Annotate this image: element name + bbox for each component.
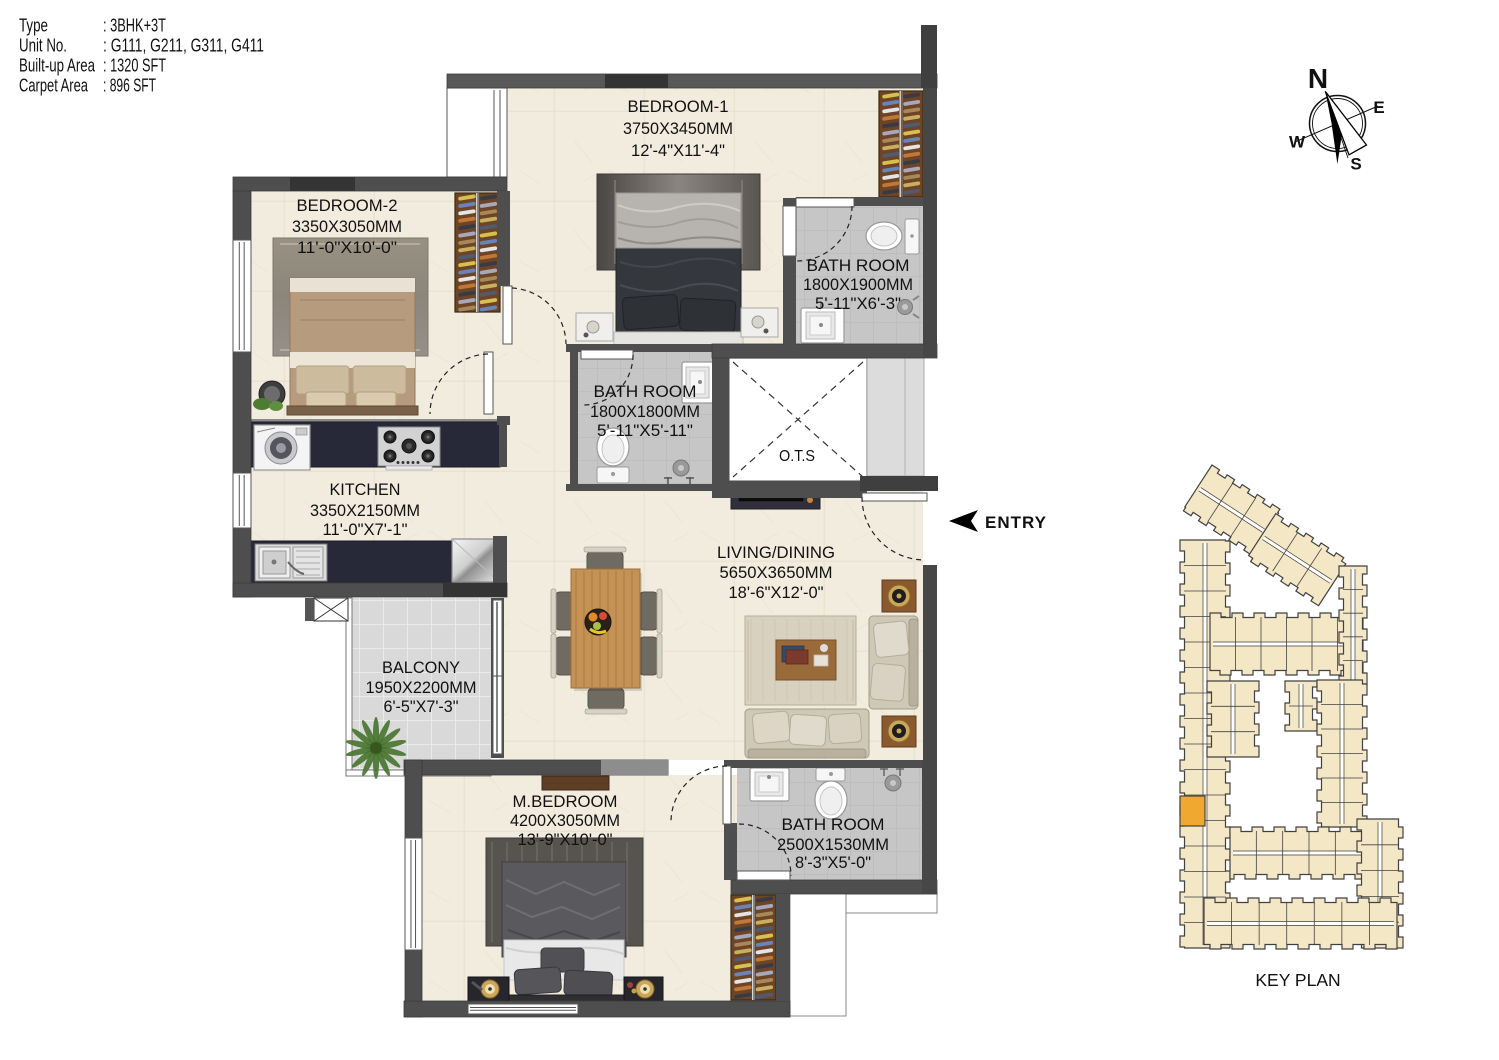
svg-text:: G111, G211, G311, G411: : G111, G211, G311, G411	[103, 36, 264, 56]
svg-text:BEDROOM-2: BEDROOM-2	[297, 196, 398, 215]
svg-text:Carpet Area: Carpet Area	[19, 76, 89, 96]
svg-text:5'-11"X6'-3": 5'-11"X6'-3"	[815, 295, 901, 313]
svg-text:5'-11"X5'-11": 5'-11"X5'-11"	[597, 422, 693, 440]
svg-text:KITCHEN: KITCHEN	[330, 480, 401, 499]
svg-text:: 896 SFT: : 896 SFT	[103, 76, 156, 96]
svg-text:Unit No.: Unit No.	[19, 36, 67, 56]
svg-text:KEY PLAN: KEY PLAN	[1255, 970, 1340, 990]
svg-text:11'-0"X7'-1": 11'-0"X7'-1"	[323, 520, 408, 539]
svg-text:BATH ROOM: BATH ROOM	[807, 257, 910, 275]
svg-text:BATH ROOM: BATH ROOM	[594, 383, 697, 401]
svg-text:M.BEDROOM: M.BEDROOM	[513, 792, 618, 811]
svg-text:8'-3"X5'-0": 8'-3"X5'-0"	[795, 854, 871, 872]
svg-text:E: E	[1373, 98, 1384, 117]
svg-text:13'-9"X10'-0": 13'-9"X10'-0"	[518, 830, 613, 849]
svg-text:Built-up Area: Built-up Area	[19, 56, 96, 76]
svg-text:12'-4"X11'-4": 12'-4"X11'-4"	[631, 141, 725, 160]
svg-text:: 3BHK+3T: : 3BHK+3T	[103, 16, 166, 36]
svg-text:18'-6"X12'-0": 18'-6"X12'-0"	[729, 583, 824, 602]
svg-text:1800X1800MM: 1800X1800MM	[590, 403, 700, 421]
svg-text:N: N	[1308, 63, 1328, 94]
svg-text:: 1320 SFT: : 1320 SFT	[103, 56, 166, 76]
svg-text:5650X3650MM: 5650X3650MM	[720, 563, 833, 582]
svg-text:3750X3450MM: 3750X3450MM	[623, 119, 733, 138]
svg-text:11'-0"X10'-0": 11'-0"X10'-0"	[297, 238, 397, 257]
svg-text:6'-5"X7'-3": 6'-5"X7'-3"	[384, 697, 459, 716]
svg-text:BATH ROOM: BATH ROOM	[782, 816, 885, 834]
svg-text:4200X3050MM: 4200X3050MM	[510, 811, 620, 830]
svg-text:BEDROOM-1: BEDROOM-1	[628, 97, 729, 116]
svg-text:3350X2150MM: 3350X2150MM	[310, 501, 420, 520]
svg-text:2500X1530MM: 2500X1530MM	[777, 836, 889, 854]
svg-text:Type: Type	[19, 16, 48, 36]
svg-text:1950X2200MM: 1950X2200MM	[366, 678, 477, 697]
svg-text:S: S	[1350, 155, 1361, 174]
svg-text:3350X3050MM: 3350X3050MM	[292, 217, 402, 236]
svg-text:ENTRY: ENTRY	[985, 513, 1047, 532]
svg-text:1800X1900MM: 1800X1900MM	[803, 276, 913, 294]
svg-text:LIVING/DINING: LIVING/DINING	[717, 543, 835, 562]
svg-text:W: W	[1289, 133, 1306, 152]
svg-text:O.T.S: O.T.S	[779, 448, 815, 465]
svg-text:BALCONY: BALCONY	[382, 658, 460, 677]
